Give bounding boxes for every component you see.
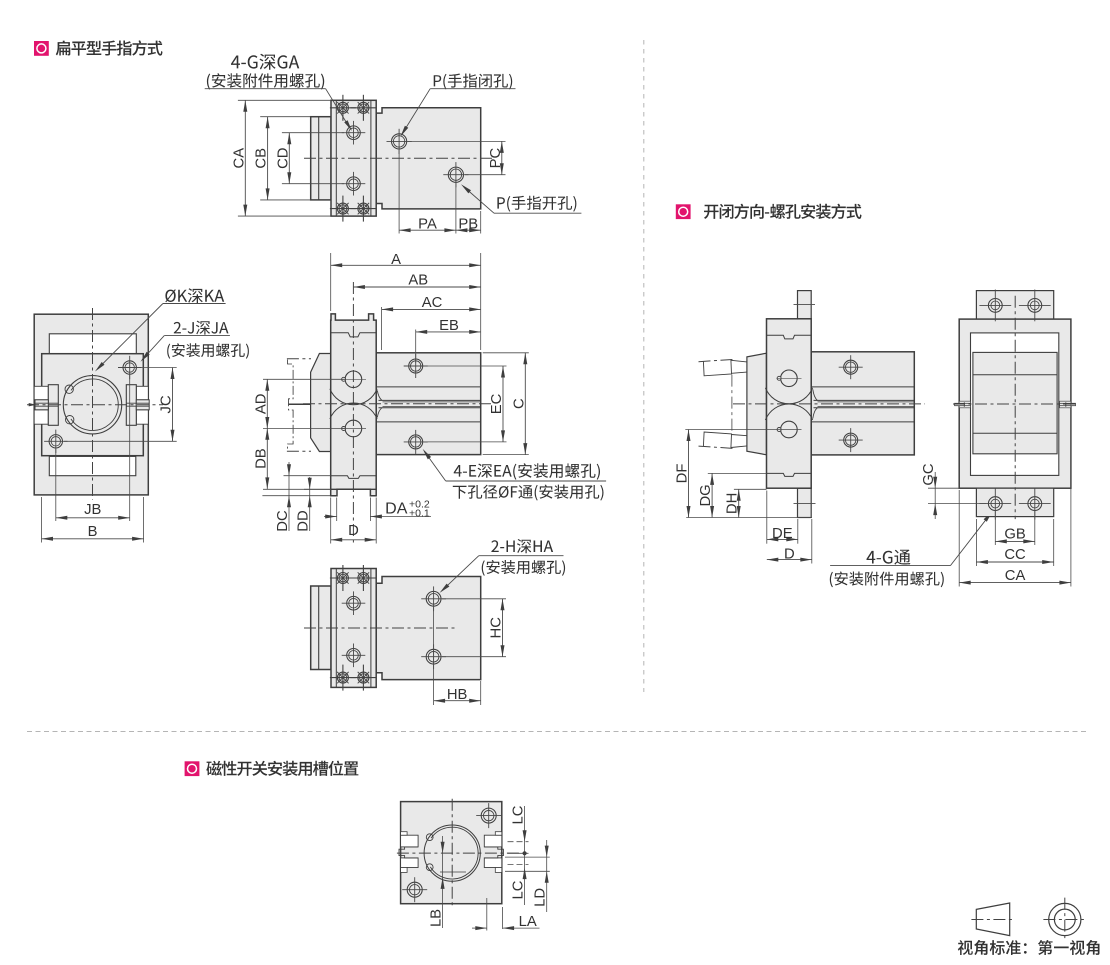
svg-text:HB: HB [447, 687, 468, 703]
svg-text:DG: DG [698, 484, 714, 506]
svg-text:D: D [784, 547, 795, 563]
svg-text:DA: DA [385, 501, 408, 518]
svg-text:AD: AD [253, 394, 269, 415]
svg-text:DD: DD [296, 510, 312, 531]
svg-text:AC: AC [422, 295, 443, 311]
svg-text:PC: PC [488, 147, 504, 168]
svg-text:PB: PB [458, 216, 478, 232]
svg-text:EB: EB [439, 318, 459, 334]
svg-text:JC: JC [159, 395, 175, 413]
svg-text:AB: AB [408, 273, 428, 289]
svg-text:CD: CD [275, 148, 291, 169]
svg-text:GB: GB [1004, 527, 1026, 543]
svg-text:CB: CB [254, 148, 270, 169]
svg-text:+0.1: +0.1 [409, 508, 430, 520]
svg-text:DE: DE [772, 526, 793, 542]
svg-text:CA: CA [231, 148, 247, 169]
svg-text:A: A [391, 252, 401, 268]
svg-text:PA: PA [418, 216, 437, 232]
svg-text:DC: DC [275, 510, 291, 532]
svg-text:HC: HC [489, 617, 505, 639]
svg-text:DB: DB [253, 448, 269, 469]
svg-text:DH: DH [725, 493, 741, 514]
svg-text:D: D [348, 523, 359, 539]
svg-text:LC: LC [511, 805, 527, 824]
svg-text:LB: LB [429, 909, 445, 927]
svg-text:CC: CC [1004, 547, 1026, 563]
svg-text:LD: LD [533, 888, 549, 907]
svg-text:LC: LC [511, 880, 527, 899]
svg-text:LA: LA [519, 914, 537, 930]
svg-text:JB: JB [84, 502, 101, 518]
svg-text:EC: EC [489, 393, 505, 414]
svg-text:C: C [511, 398, 527, 409]
svg-text:DF: DF [675, 464, 691, 484]
svg-text:B: B [88, 524, 98, 540]
svg-text:CA: CA [1005, 568, 1026, 584]
svg-text:GC: GC [921, 463, 937, 486]
